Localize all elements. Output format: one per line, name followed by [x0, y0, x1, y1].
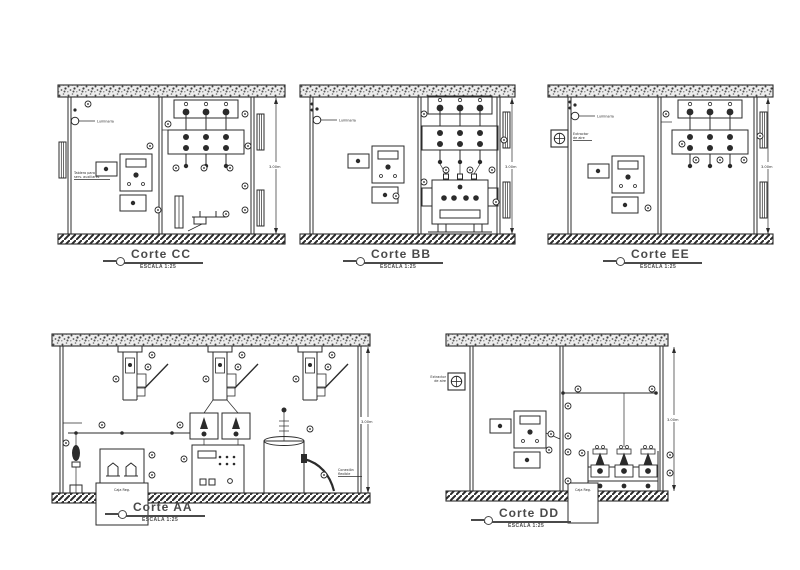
drawing-sheet: Luminaria Tablero para serv. auxiliares …: [0, 0, 800, 570]
corte-bb-drawing: Luminaria 3.00m: [300, 84, 518, 252]
left-wall: [59, 97, 71, 234]
title-corte-dd: Corte DD ESCALA 1:25: [484, 506, 571, 529]
bushing-post-3: [298, 346, 348, 400]
left-wall: [470, 346, 473, 491]
lamp-label: Luminaria: [339, 119, 356, 123]
callout-balloons: [645, 111, 763, 211]
hv-insulator-assembly: [162, 100, 244, 168]
floor-slab: [446, 491, 668, 501]
transformer: [422, 164, 498, 232]
floor-slab: [548, 234, 773, 244]
transformer: [264, 408, 334, 494]
extractor-fan: Extractor de aire: [430, 373, 465, 390]
svg-text:flexible: flexible: [338, 472, 350, 476]
title-corte-bb: Corte BB ESCALA 1:25: [356, 247, 443, 270]
ceiling-slab: [548, 85, 773, 97]
title-text: Corte EE: [631, 247, 690, 261]
scale-label: ESCALA 1:25: [508, 523, 571, 529]
svg-text:de aire: de aire: [434, 379, 446, 383]
title-text: Corte AA: [133, 500, 193, 514]
wall-lamp: Luminaria: [313, 107, 356, 123]
control-cabinet: [192, 445, 244, 493]
right-wall: [660, 346, 663, 491]
title-marker-icon: [616, 257, 625, 266]
overhead-bus: [561, 391, 658, 447]
scale-label: ESCALA 1:25: [140, 264, 203, 270]
ground-conduit: [175, 196, 226, 231]
lamp-label: Luminaria: [597, 115, 614, 119]
hv-insulator-assembly: [661, 100, 748, 168]
title-marker-icon: [484, 516, 493, 525]
left-wall: [568, 97, 572, 234]
partition-wall: [159, 97, 162, 234]
ceiling-slab: [58, 85, 285, 97]
corte-cc-drawing: Luminaria Tablero para serv. auxiliares …: [58, 84, 288, 252]
pull-pit: Caja Reg.: [568, 483, 598, 523]
ceiling-slab: [300, 85, 515, 97]
partition-wall: [560, 346, 563, 491]
svg-text:3.00m: 3.00m: [761, 165, 773, 169]
right-wall: [251, 97, 264, 234]
meter-cabinet: [490, 411, 560, 468]
left-wall: [60, 346, 63, 493]
svg-text:3.00m: 3.00m: [667, 418, 679, 422]
left-wall: [310, 97, 314, 234]
fuse-boxes: [190, 400, 250, 445]
floor-slab: [300, 234, 515, 244]
partition-wall: [658, 97, 661, 234]
ceiling-slab: [446, 334, 668, 346]
pit-label: Caja Reg.: [575, 488, 591, 492]
scale-label: ESCALA 1:25: [640, 264, 702, 270]
wall-lamp: Luminaria: [571, 103, 614, 119]
scale-label: ESCALA 1:25: [142, 517, 205, 523]
title-marker-icon: [356, 257, 365, 266]
title-marker-icon: [116, 257, 125, 266]
floor-slab: [58, 234, 285, 244]
bushing-post-1: [118, 346, 168, 400]
svg-text:3.00m: 3.00m: [361, 420, 373, 424]
title-corte-ee: Corte EE ESCALA 1:25: [616, 247, 702, 270]
meter-cabinet: [96, 154, 152, 211]
ceiling-slab: [52, 334, 370, 346]
pit-label: Caja Reg.: [114, 488, 130, 492]
lv-bus: [63, 423, 190, 435]
height-dimension: 3.00m: [360, 347, 376, 493]
svg-text:3.00m: 3.00m: [505, 165, 517, 169]
callout-balloons: [63, 352, 335, 478]
height-dimension: 3.00m: [666, 347, 682, 491]
hv-insulator-assembly: [421, 96, 498, 164]
title-text: Corte DD: [499, 506, 559, 520]
corte-dd-drawing: Extractor de aire Caja Reg. 3.00m: [438, 333, 688, 533]
height-dimension: 3.00m: [268, 98, 284, 234]
title-text: Corte CC: [131, 247, 191, 261]
wall-lamp: Luminaria: [71, 108, 114, 124]
lamp-label: Luminaria: [97, 120, 114, 124]
callout-balloons: [393, 111, 507, 205]
svg-text:3.00m: 3.00m: [269, 165, 281, 169]
corte-aa-drawing: Conexión flexible Caja Reg. 3.00m: [52, 333, 374, 533]
corte-ee-drawing: Extractor de aire Luminaria 3.00m: [548, 84, 776, 252]
surge-arrester: [70, 433, 82, 493]
title-corte-aa: Corte AA ESCALA 1:25: [118, 500, 205, 523]
bushing-post-2: [208, 346, 258, 400]
title-marker-icon: [118, 510, 127, 519]
scale-label: ESCALA 1:25: [380, 264, 443, 270]
title-text: Corte BB: [371, 247, 431, 261]
meter-cabinet: [588, 156, 644, 213]
svg-text:de aire: de aire: [573, 136, 585, 140]
title-corte-cc: Corte CC ESCALA 1:25: [116, 247, 203, 270]
partition-wall: [418, 97, 421, 234]
